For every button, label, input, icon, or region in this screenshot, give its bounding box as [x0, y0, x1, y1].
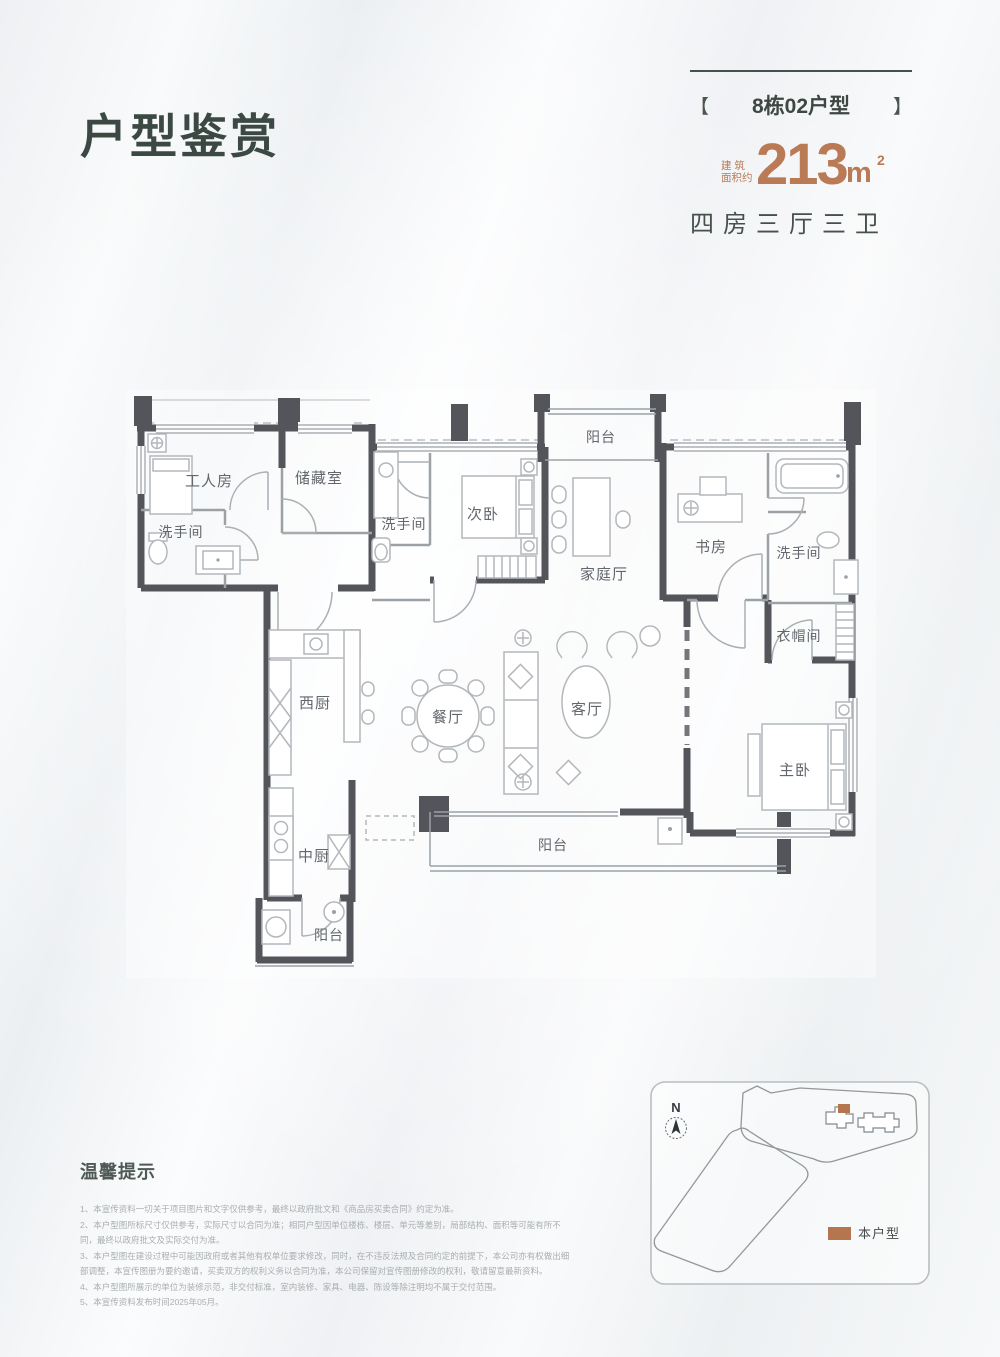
brochure-page: 户型鉴赏 【 8栋02户型 】 建 筑面积约 213 m 2 四房三厅三卫 — [0, 0, 1000, 1357]
tips-item-3: 3、本户型图在建设过程中可能因政府或者其他有权单位要求修改，同时，在不违反法规及… — [80, 1249, 572, 1280]
tips-title: 温馨提示 — [80, 1158, 572, 1184]
site-legend: 本户型 — [828, 1226, 900, 1241]
tips-section: 温馨提示 1、本宣传资料一切关于项目图片和文字仅供参考，最终以政府批文和《商品房… — [80, 1158, 572, 1311]
tips-item-2: 2、本户型图所标尺寸仅供参考，实际尺寸以合同为准；相同户型因单位楼栋、楼层、单元… — [80, 1218, 572, 1249]
tips-item-5: 5、本宣传资料发布时间2025年05月。 — [80, 1295, 572, 1311]
tips-item-1: 1、本宣传资料一切关于项目图片和文字仅供参考，最终以政府批文和《商品房买卖合同》… — [80, 1202, 572, 1218]
legend-swatch — [828, 1227, 851, 1240]
site-map: N 本户型 — [0, 0, 1000, 1357]
compass-north-label: N — [671, 1100, 680, 1115]
legend-label: 本户型 — [858, 1226, 900, 1241]
tips-item-4: 4、本户型图所展示的单位为装修示范，非交付标准，室内装修、家具、电器、陈设等除注… — [80, 1280, 572, 1296]
site-map-border — [651, 1082, 929, 1284]
highlighted-unit-marker — [838, 1104, 850, 1113]
